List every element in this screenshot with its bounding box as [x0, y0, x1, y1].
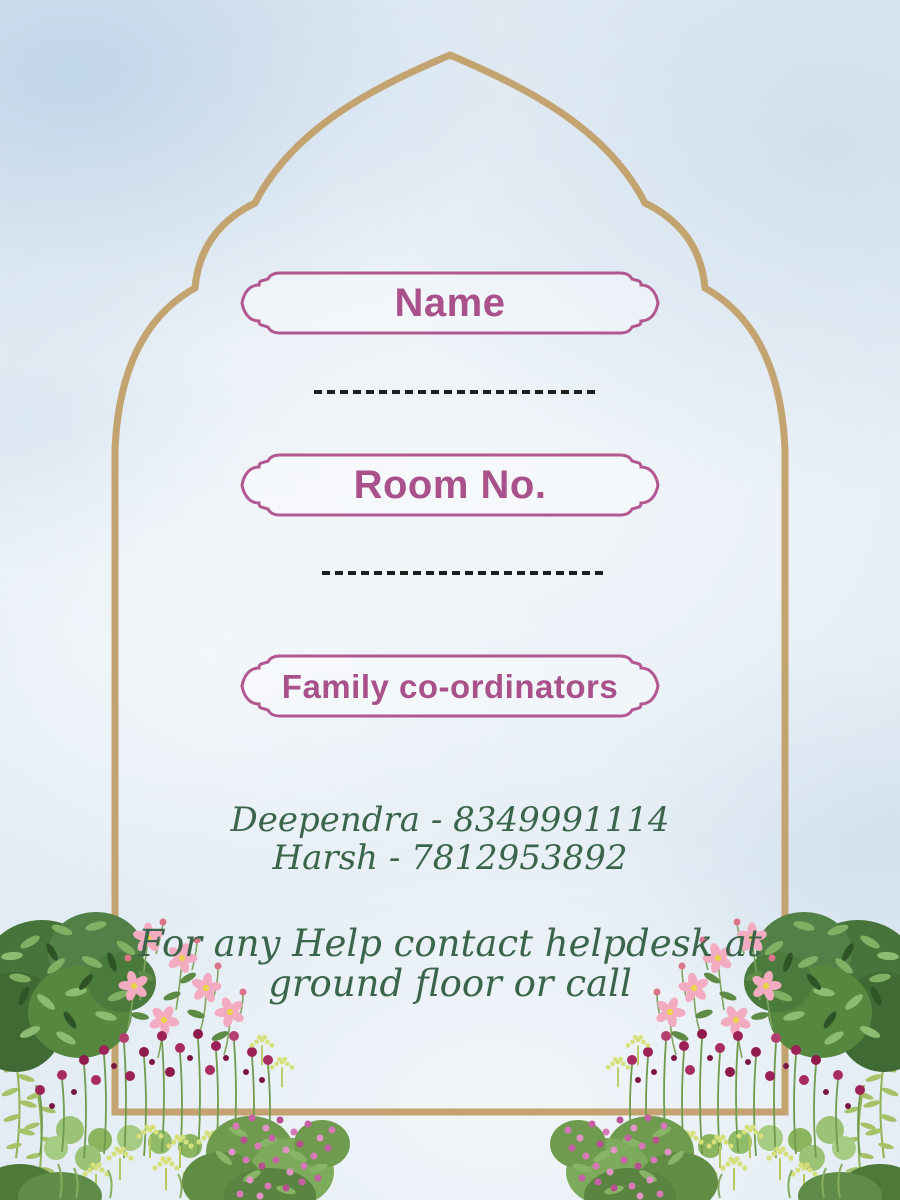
family-coordinators-label: Family co-ordinators	[282, 670, 618, 703]
room-write-line	[318, 567, 610, 579]
coordinator-contacts: Deependra - 8349991114 Harsh - 781295389…	[0, 801, 900, 877]
coordinator-contact-2: Harsh - 7812953892	[0, 839, 900, 877]
name-write-line	[310, 386, 602, 398]
name-label: Name	[395, 283, 506, 323]
coordinator-contact-1: Deependra - 8349991114	[0, 801, 900, 839]
room-plaque: Room No.	[240, 452, 660, 518]
room-label: Room No.	[354, 465, 547, 505]
help-note-line2: ground floor or call	[0, 964, 900, 1004]
family-coordinators-plaque: Family co-ordinators	[240, 653, 660, 719]
name-plaque: Name	[240, 270, 660, 336]
help-note: For any Help contact helpdesk at ground …	[0, 924, 900, 1004]
help-note-line1: For any Help contact helpdesk at	[0, 924, 900, 964]
invitation-card: Name Room No. Family co-ordinators Deepe…	[0, 0, 900, 1200]
